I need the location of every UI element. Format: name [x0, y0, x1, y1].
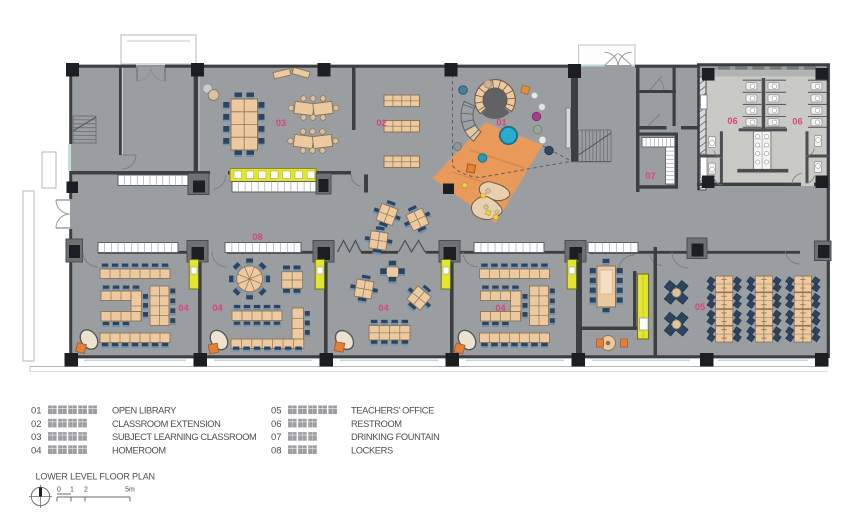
svg-text:5m: 5m: [125, 487, 135, 494]
svg-text:LOCKERS: LOCKERS: [351, 445, 393, 455]
svg-text:05: 05: [271, 406, 282, 417]
svg-text:06: 06: [727, 116, 737, 126]
svg-text:CLASSROOM EXTENSION: CLASSROOM EXTENSION: [112, 419, 221, 429]
svg-text:SUBJECT LEARNING CLASSROOM: SUBJECT LEARNING CLASSROOM: [112, 432, 256, 442]
svg-text:07: 07: [271, 432, 282, 443]
svg-text:04: 04: [178, 303, 189, 313]
svg-text:05: 05: [695, 302, 705, 312]
svg-text:01: 01: [496, 118, 506, 128]
svg-text:06: 06: [792, 117, 802, 127]
svg-text:LOWER LEVEL FLOOR PLAN: LOWER LEVEL FLOOR PLAN: [36, 472, 155, 482]
svg-text:TEACHERS’ OFFICE: TEACHERS’ OFFICE: [351, 406, 434, 416]
svg-text:08: 08: [252, 232, 262, 242]
svg-text:02: 02: [376, 118, 386, 128]
svg-text:1: 1: [70, 487, 74, 494]
svg-text:04: 04: [31, 445, 42, 456]
svg-text:RESTROOM: RESTROOM: [351, 419, 402, 429]
svg-text:2: 2: [84, 487, 88, 494]
svg-text:06: 06: [271, 419, 282, 430]
svg-text:0: 0: [57, 487, 61, 494]
svg-text:04: 04: [212, 303, 223, 313]
svg-text:08: 08: [271, 445, 282, 456]
svg-text:07: 07: [645, 171, 655, 181]
svg-text:03: 03: [31, 432, 42, 443]
svg-text:03: 03: [276, 118, 286, 128]
svg-text:04: 04: [495, 303, 506, 313]
svg-text:HOMEROOM: HOMEROOM: [112, 445, 166, 455]
svg-text:04: 04: [378, 303, 389, 313]
svg-text:02: 02: [31, 419, 42, 430]
svg-text:DRINKING FOUNTAIN: DRINKING FOUNTAIN: [351, 432, 439, 442]
svg-text:01: 01: [31, 406, 42, 417]
svg-text:OPEN LIBRARY: OPEN LIBRARY: [112, 406, 176, 416]
